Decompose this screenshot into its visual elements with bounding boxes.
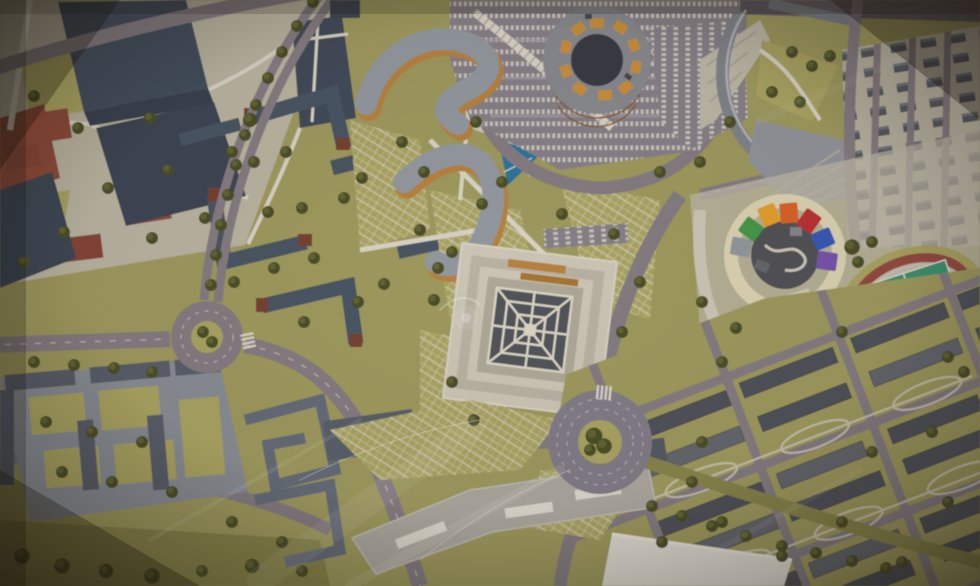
city-model-photo <box>0 0 980 586</box>
photo-vignette <box>0 0 980 586</box>
city-model-svg <box>0 0 980 586</box>
